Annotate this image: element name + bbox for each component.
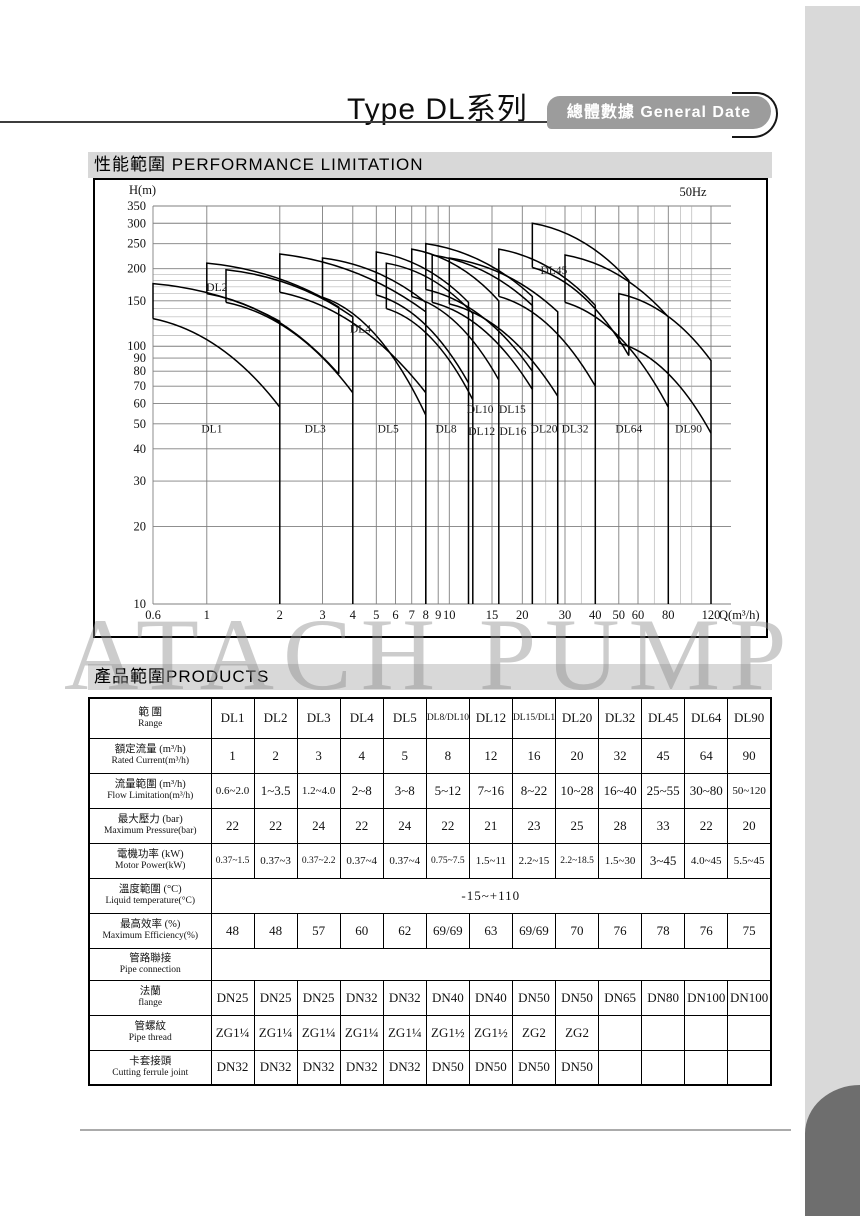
table-cell: 75 bbox=[728, 913, 771, 948]
table-cell: ZG1½ bbox=[469, 1015, 512, 1050]
products-table: 範 圍RangeDL1DL2DL3DL4DL5DL8/DL10DL12DL15/… bbox=[88, 697, 772, 1086]
table-cell: DN32 bbox=[297, 1050, 340, 1085]
envelope-upper-DL1 bbox=[153, 284, 280, 604]
envelope-lower-DL64 bbox=[565, 302, 668, 407]
table-cell: 0.75~7.5 bbox=[426, 843, 469, 878]
table-cell: 25 bbox=[556, 808, 599, 843]
y-tick-label: 100 bbox=[127, 339, 146, 353]
row-label-zh: 額定流量 (m³/h) bbox=[90, 743, 211, 756]
performance-section-header: 性能範圍 PERFORMANCE LIMITATION bbox=[88, 152, 772, 178]
envelope-upper-DL3 bbox=[226, 270, 353, 604]
x-axis-title: Q(m³/h) bbox=[719, 608, 760, 622]
table-row: 法蘭flangeDN25DN25DN25DN32DN32DN40DN40DN50… bbox=[89, 980, 771, 1015]
table-cell: DN80 bbox=[642, 980, 685, 1015]
table-cell: 64 bbox=[685, 738, 728, 773]
table-cell: 22 bbox=[426, 808, 469, 843]
table-cell: 76 bbox=[599, 913, 642, 948]
table-cell: DN50 bbox=[426, 1050, 469, 1085]
table-cell: 8 bbox=[426, 738, 469, 773]
table-cell: 1.5~30 bbox=[599, 843, 642, 878]
envelope-lower-DL8 bbox=[376, 295, 468, 383]
y-tick-label: 150 bbox=[127, 294, 146, 308]
column-header-DL20: DL20 bbox=[556, 698, 599, 738]
x-tick-label: 30 bbox=[559, 608, 572, 622]
table-cell: ZG2 bbox=[512, 1015, 555, 1050]
table-cell-span: -15~+110 bbox=[211, 878, 771, 913]
y-tick-label: 60 bbox=[134, 396, 147, 410]
x-tick-label: 10 bbox=[443, 608, 456, 622]
row-label-zh: 溫度範圍 (°C) bbox=[90, 883, 211, 896]
table-header-row: 範 圍RangeDL1DL2DL3DL4DL5DL8/DL10DL12DL15/… bbox=[89, 698, 771, 738]
table-cell: 63 bbox=[469, 913, 512, 948]
table-cell: DN50 bbox=[512, 1050, 555, 1085]
y-tick-label: 70 bbox=[134, 379, 147, 393]
curve-label-DL2: DL2 bbox=[206, 282, 227, 294]
x-tick-label: 5 bbox=[373, 608, 379, 622]
curve-label-DL90: DL90 bbox=[675, 423, 702, 435]
column-header-DL15-DL16: DL15/DL16 bbox=[512, 698, 555, 738]
column-header-DL32: DL32 bbox=[599, 698, 642, 738]
row-label-zh: 管路聯接 bbox=[90, 952, 211, 965]
table-cell: DN40 bbox=[426, 980, 469, 1015]
general-data-badge-label: 總體數據 General Date bbox=[567, 104, 751, 121]
y-tick-label: 250 bbox=[127, 237, 146, 251]
x-tick-label: 80 bbox=[662, 608, 675, 622]
products-section-header: 產品範圍PRODUCTS bbox=[88, 664, 772, 690]
curve-label-DL15: DL15 bbox=[499, 404, 526, 416]
table-cell: 21 bbox=[469, 808, 512, 843]
curve-label-DL8: DL8 bbox=[436, 423, 457, 435]
curve-label-DL3: DL3 bbox=[305, 423, 326, 435]
table-cell: 12 bbox=[469, 738, 512, 773]
frequency-label: 50Hz bbox=[679, 185, 707, 199]
curve-label-DL1: DL1 bbox=[201, 423, 222, 435]
envelope-lower-DL1 bbox=[153, 319, 280, 408]
table-cell: DN25 bbox=[211, 980, 254, 1015]
performance-chart: 1020304050607080901001502002503003500.61… bbox=[93, 178, 768, 638]
table-row: 卡套接頭Cutting ferrule jointDN32DN32DN32DN3… bbox=[89, 1050, 771, 1085]
table-cell: 22 bbox=[685, 808, 728, 843]
column-header-DL90: DL90 bbox=[728, 698, 771, 738]
column-header-DL8-DL10: DL8/DL10 bbox=[426, 698, 469, 738]
x-tick-label: 3 bbox=[319, 608, 325, 622]
table-cell: DN100 bbox=[685, 980, 728, 1015]
row-label-en: Liquid temperature(°C) bbox=[90, 896, 211, 907]
row-label-en: flange bbox=[90, 998, 211, 1009]
table-cell: 5~12 bbox=[426, 773, 469, 808]
column-header-DL3: DL3 bbox=[297, 698, 340, 738]
table-cell: 5 bbox=[383, 738, 426, 773]
row-label: 電機功率 (kW)Motor Power(kW) bbox=[89, 843, 211, 878]
table-cell: DN25 bbox=[254, 980, 297, 1015]
table-cell: 16 bbox=[512, 738, 555, 773]
table-cell: 25~55 bbox=[642, 773, 685, 808]
table-cell: 3~8 bbox=[383, 773, 426, 808]
table-cell: 2~8 bbox=[340, 773, 383, 808]
table-cell: DN40 bbox=[469, 980, 512, 1015]
x-tick-label: 2 bbox=[277, 608, 283, 622]
row-label-zh: 管螺紋 bbox=[90, 1020, 211, 1033]
table-cell: ZG1¼ bbox=[254, 1015, 297, 1050]
row-label-zh: 電機功率 (kW) bbox=[90, 848, 211, 861]
row-label-en: Flow Limitation(m³/h) bbox=[90, 791, 211, 802]
catalog-page: Type DL系列 總體數據 General Date 性能範圍 PERFORM… bbox=[0, 0, 860, 1216]
table-cell: ZG2 bbox=[556, 1015, 599, 1050]
performance-chart-svg: 1020304050607080901001502002503003500.61… bbox=[95, 180, 766, 636]
table-cell: 50~120 bbox=[728, 773, 771, 808]
y-tick-label: 350 bbox=[127, 199, 146, 213]
envelope-lower-DL15 bbox=[426, 290, 533, 372]
table-cell: DN50 bbox=[512, 980, 555, 1015]
table-cell: 7~16 bbox=[469, 773, 512, 808]
x-tick-label: 6 bbox=[392, 608, 398, 622]
table-cell: 33 bbox=[642, 808, 685, 843]
row-label-zh: 最高效率 (%) bbox=[90, 918, 211, 931]
envelope-lower-DL12 bbox=[412, 296, 499, 379]
table-cell: 0.37~1.5 bbox=[211, 843, 254, 878]
row-label-en: Pipe thread bbox=[90, 1033, 211, 1044]
table-cell: 0.37~3 bbox=[254, 843, 297, 878]
table-cell: DN25 bbox=[297, 980, 340, 1015]
table-cell: 69/69 bbox=[426, 913, 469, 948]
table-cell: ZG1¼ bbox=[340, 1015, 383, 1050]
table-cell: 0.37~4 bbox=[340, 843, 383, 878]
table-cell bbox=[685, 1015, 728, 1050]
x-tick-label: 4 bbox=[350, 608, 357, 622]
curve-label-DL32: DL32 bbox=[562, 423, 589, 435]
table-cell: 48 bbox=[211, 913, 254, 948]
table-cell: DN100 bbox=[728, 980, 771, 1015]
y-tick-label: 200 bbox=[127, 262, 146, 276]
column-header-DL5: DL5 bbox=[383, 698, 426, 738]
table-cell bbox=[685, 1050, 728, 1085]
table-cell: 2.2~18.5 bbox=[556, 843, 599, 878]
table-cell: 2 bbox=[254, 738, 297, 773]
table-cell: DN32 bbox=[383, 1050, 426, 1085]
table-cell: 22 bbox=[340, 808, 383, 843]
column-header-DL2: DL2 bbox=[254, 698, 297, 738]
table-row: 流量範圍 (m³/h)Flow Limitation(m³/h)0.6~2.01… bbox=[89, 773, 771, 808]
table-cell: 62 bbox=[383, 913, 426, 948]
table-cell: 16~40 bbox=[599, 773, 642, 808]
table-cell-span bbox=[211, 948, 771, 980]
table-row: 溫度範圍 (°C)Liquid temperature(°C)-15~+110 bbox=[89, 878, 771, 913]
table-cell: 48 bbox=[254, 913, 297, 948]
table-cell: 69/69 bbox=[512, 913, 555, 948]
row-label: 溫度範圍 (°C)Liquid temperature(°C) bbox=[89, 878, 211, 913]
envelope-lower-DL2 bbox=[207, 294, 339, 374]
table-cell: 4.0~45 bbox=[685, 843, 728, 878]
table-cell: 22 bbox=[254, 808, 297, 843]
y-axis-title: H(m) bbox=[129, 183, 156, 197]
table-cell: DN50 bbox=[469, 1050, 512, 1085]
table-cell: 0.37~4 bbox=[383, 843, 426, 878]
table-cell: 20 bbox=[728, 808, 771, 843]
table-cell bbox=[642, 1015, 685, 1050]
row-label-en: Pipe connection bbox=[90, 965, 211, 976]
table-cell: DN32 bbox=[211, 1050, 254, 1085]
envelope-lower-DL90 bbox=[619, 343, 711, 433]
table-cell bbox=[728, 1050, 771, 1085]
curve-label-DL20: DL20 bbox=[531, 423, 558, 435]
x-tick-label: 120 bbox=[702, 608, 721, 622]
table-cell: DN32 bbox=[340, 980, 383, 1015]
table-cell: 1 bbox=[211, 738, 254, 773]
table-cell: 60 bbox=[340, 913, 383, 948]
table-cell: 28 bbox=[599, 808, 642, 843]
x-tick-label: 15 bbox=[486, 608, 499, 622]
table-cell: DN32 bbox=[383, 980, 426, 1015]
column-header-DL4: DL4 bbox=[340, 698, 383, 738]
table-cell: 23 bbox=[512, 808, 555, 843]
y-tick-label: 40 bbox=[134, 442, 147, 456]
row-label: 管路聯接Pipe connection bbox=[89, 948, 211, 980]
table-cell: 45 bbox=[642, 738, 685, 773]
table-cell: DN50 bbox=[556, 980, 599, 1015]
table-cell: 22 bbox=[211, 808, 254, 843]
table-cell: 90 bbox=[728, 738, 771, 773]
table-cell: DN32 bbox=[340, 1050, 383, 1085]
row-label-en: Cutting ferrule joint bbox=[90, 1068, 211, 1079]
table-row: 管螺紋Pipe threadZG1¼ZG1¼ZG1¼ZG1¼ZG1¼ZG1½ZG… bbox=[89, 1015, 771, 1050]
row-label: 流量範圍 (m³/h)Flow Limitation(m³/h) bbox=[89, 773, 211, 808]
curve-label-DL45: DL45 bbox=[540, 265, 567, 277]
table-cell bbox=[728, 1015, 771, 1050]
row-label-zh: 流量範圍 (m³/h) bbox=[90, 778, 211, 791]
row-label-zh: 範 圍 bbox=[90, 706, 211, 719]
table-cell: 1.5~11 bbox=[469, 843, 512, 878]
table-cell: 24 bbox=[297, 808, 340, 843]
header-rule bbox=[0, 121, 553, 123]
table-cell: 1.2~4.0 bbox=[297, 773, 340, 808]
table-cell bbox=[599, 1015, 642, 1050]
row-label: 最大壓力 (bar)Maximum Pressure(bar) bbox=[89, 808, 211, 843]
x-tick-label: 7 bbox=[409, 608, 415, 622]
table-cell: ZG1¼ bbox=[211, 1015, 254, 1050]
envelope-lower-DL45 bbox=[532, 268, 629, 356]
general-data-badge: 總體數據 General Date bbox=[547, 96, 771, 129]
row-label: 範 圍Range bbox=[89, 698, 211, 738]
table-cell: 30~80 bbox=[685, 773, 728, 808]
x-tick-label: 1 bbox=[204, 608, 210, 622]
table-cell: 10~28 bbox=[556, 773, 599, 808]
table-row: 最大壓力 (bar)Maximum Pressure(bar)222224222… bbox=[89, 808, 771, 843]
row-label: 管螺紋Pipe thread bbox=[89, 1015, 211, 1050]
row-label: 額定流量 (m³/h)Rated Current(m³/h) bbox=[89, 738, 211, 773]
footer-rule bbox=[80, 1129, 791, 1131]
table-cell: 76 bbox=[685, 913, 728, 948]
envelope-upper-DL16 bbox=[432, 255, 532, 389]
table-cell: 57 bbox=[297, 913, 340, 948]
row-label-en: Maximum Pressure(bar) bbox=[90, 826, 211, 837]
curve-label-DL16: DL16 bbox=[500, 426, 527, 438]
row-label-zh: 卡套接頭 bbox=[90, 1055, 211, 1068]
table-cell: 2.2~15 bbox=[512, 843, 555, 878]
table-cell: 4 bbox=[340, 738, 383, 773]
x-tick-label: 8 bbox=[423, 608, 429, 622]
column-header-DL1: DL1 bbox=[211, 698, 254, 738]
table-cell: 1~3.5 bbox=[254, 773, 297, 808]
row-label-en: Maximum Efficiency(%) bbox=[90, 931, 211, 942]
row-label-en: Motor Power(kW) bbox=[90, 861, 211, 872]
table-cell: 20 bbox=[556, 738, 599, 773]
curve-label-DL64: DL64 bbox=[615, 423, 642, 435]
curve-label-DL5: DL5 bbox=[378, 423, 399, 435]
x-tick-label: 50 bbox=[613, 608, 626, 622]
table-cell: 5.5~45 bbox=[728, 843, 771, 878]
x-tick-label: 60 bbox=[632, 608, 645, 622]
y-tick-label: 50 bbox=[134, 417, 147, 431]
table-row: 最高效率 (%)Maximum Efficiency(%)48485760626… bbox=[89, 913, 771, 948]
table-cell: 78 bbox=[642, 913, 685, 948]
table-row: 額定流量 (m³/h)Rated Current(m³/h)1234581216… bbox=[89, 738, 771, 773]
curve-label-DL4: DL4 bbox=[350, 324, 371, 336]
table-cell: 24 bbox=[383, 808, 426, 843]
badge-arc-decoration bbox=[732, 92, 778, 138]
x-tick-label: 0.6 bbox=[145, 608, 161, 622]
row-label: 卡套接頭Cutting ferrule joint bbox=[89, 1050, 211, 1085]
y-tick-label: 30 bbox=[134, 474, 147, 488]
x-tick-label: 40 bbox=[589, 608, 602, 622]
table-row: 電機功率 (kW)Motor Power(kW)0.37~1.50.37~30.… bbox=[89, 843, 771, 878]
table-cell: 0.37~2.2 bbox=[297, 843, 340, 878]
y-tick-label: 80 bbox=[134, 364, 147, 378]
row-label-zh: 法蘭 bbox=[90, 985, 211, 998]
row-label-en: Range bbox=[90, 719, 211, 730]
table-cell bbox=[599, 1050, 642, 1085]
table-cell: 70 bbox=[556, 913, 599, 948]
table-cell: ZG1½ bbox=[426, 1015, 469, 1050]
x-tick-label: 20 bbox=[516, 608, 529, 622]
y-tick-label: 10 bbox=[134, 597, 147, 611]
row-label: 最高效率 (%)Maximum Efficiency(%) bbox=[89, 913, 211, 948]
column-header-DL12: DL12 bbox=[469, 698, 512, 738]
y-tick-label: 300 bbox=[127, 216, 146, 230]
table-cell: ZG1¼ bbox=[383, 1015, 426, 1050]
table-cell: 8~22 bbox=[512, 773, 555, 808]
y-tick-label: 20 bbox=[134, 519, 147, 533]
table-cell bbox=[642, 1050, 685, 1085]
envelope-lower-DL3 bbox=[226, 302, 353, 392]
x-tick-label: 9 bbox=[435, 608, 441, 622]
column-header-DL45: DL45 bbox=[642, 698, 685, 738]
table-cell: 3~45 bbox=[642, 843, 685, 878]
curve-label-DL10: DL10 bbox=[467, 404, 494, 416]
table-row: 管路聯接Pipe connection bbox=[89, 948, 771, 980]
table-cell: DN50 bbox=[556, 1050, 599, 1085]
table-cell: 32 bbox=[599, 738, 642, 773]
row-label-en: Rated Current(m³/h) bbox=[90, 756, 211, 767]
column-header-DL64: DL64 bbox=[685, 698, 728, 738]
table-cell: ZG1¼ bbox=[297, 1015, 340, 1050]
table-cell: 3 bbox=[297, 738, 340, 773]
table-cell: DN32 bbox=[254, 1050, 297, 1085]
right-sidebar-light bbox=[805, 6, 860, 1216]
curve-label-DL12: DL12 bbox=[468, 426, 495, 438]
table-cell: 0.6~2.0 bbox=[211, 773, 254, 808]
row-label-zh: 最大壓力 (bar) bbox=[90, 813, 211, 826]
row-label: 法蘭flange bbox=[89, 980, 211, 1015]
table-cell: DN65 bbox=[599, 980, 642, 1015]
